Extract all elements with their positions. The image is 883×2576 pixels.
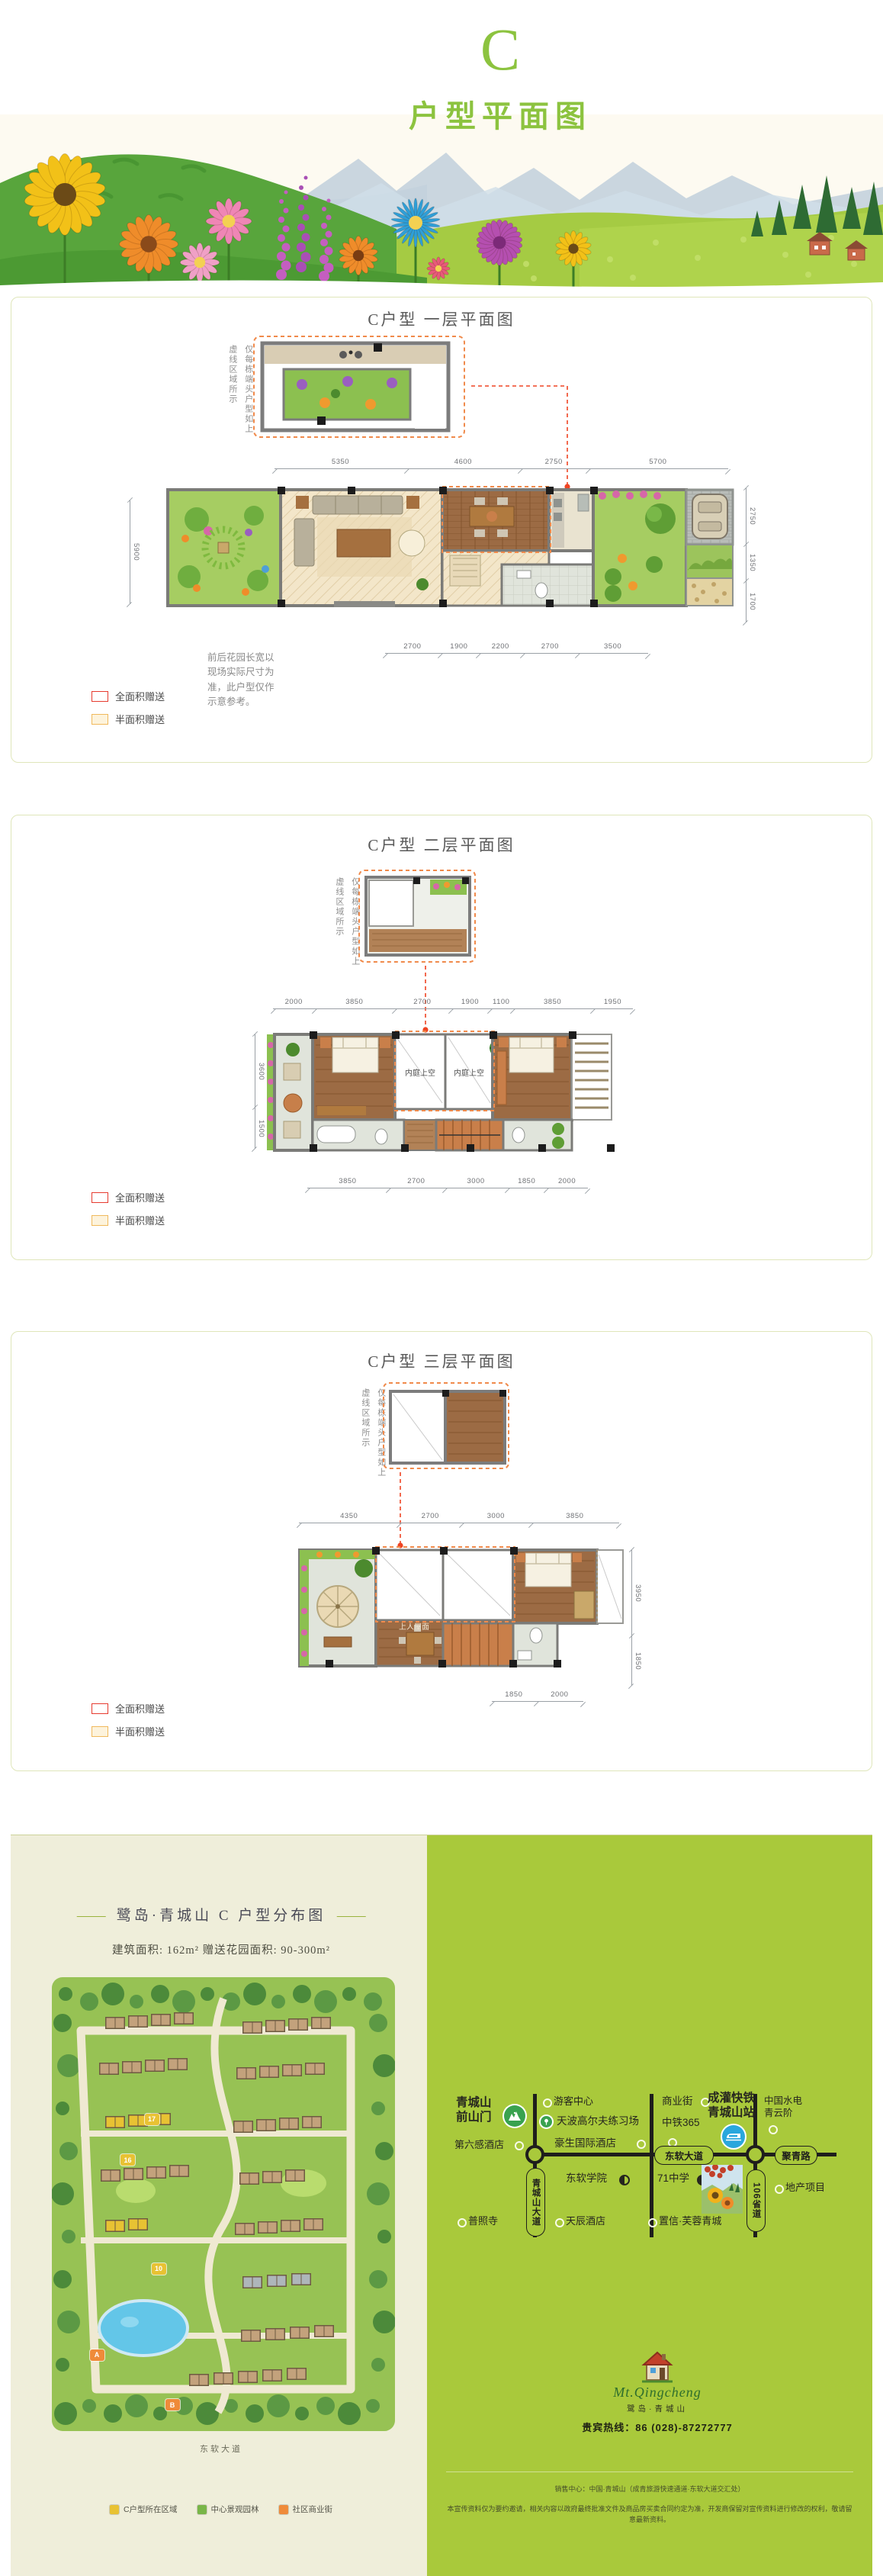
stop-dot: [775, 2185, 784, 2194]
floor3-title: C户型 三层平面图: [368, 1349, 515, 1372]
half-gift-swatch: [92, 714, 108, 725]
full-gift-swatch: [92, 691, 108, 702]
legend-half-gift: 半面积赠送: [92, 1724, 165, 1738]
label-temple: 普照寺: [468, 2215, 498, 2227]
road-junction-east: [746, 2145, 765, 2164]
banner-illustration: [0, 114, 883, 288]
full-gift-label: 全面积赠送: [115, 689, 165, 703]
dimension-segment: 2000: [546, 1177, 588, 1188]
dimension-segment: 3000: [445, 1177, 507, 1188]
mountain-gate-icon: [504, 2105, 525, 2127]
dimension-segment: 2700: [399, 1512, 461, 1523]
dimension-segment: 2200: [478, 642, 522, 654]
dimension-segment: 2700: [522, 642, 577, 654]
site-road-label: 东软大道: [200, 2443, 242, 2455]
site-legend-item: 中心景观园林: [197, 2504, 259, 2515]
floor1-leader-line: [470, 378, 573, 493]
dimension-segment: 4600: [406, 458, 520, 469]
floor2-plan-drawing: 内庭上空 内庭上空: [267, 1030, 631, 1159]
fineprint-disclaimer: 本宣传资料仅为要约邀请，相关内容以政府最终批准文件及商品房买卖合同约定为准，开发…: [446, 2504, 853, 2526]
floor2-title: C户型 二层平面图: [368, 833, 515, 856]
floor1-top-dimensions: 5350460027505700: [275, 458, 728, 469]
floor1-bottom-dimensions: 27001900220027003500: [385, 642, 648, 654]
dimension-segment: 1500: [255, 1108, 266, 1149]
full-gift-label: 全面积赠送: [115, 1701, 165, 1716]
label-visitor-center: 游客中心: [554, 2095, 593, 2108]
label-college: 东软学院: [566, 2172, 607, 2185]
road-vertical-2-up: [650, 2094, 653, 2155]
train-icon: [722, 2125, 745, 2148]
floor1-left-dimensions: 5900: [130, 500, 141, 604]
school-icon: [619, 2175, 630, 2185]
legend-full-gift: 全面积赠送: [92, 1701, 165, 1716]
dimension-segment: 1850: [492, 1690, 536, 1702]
site-marker: B: [165, 2399, 180, 2410]
site-plan-map: A B 10 16 17: [52, 1977, 395, 2431]
floor3-mini-plan: [381, 1381, 515, 1474]
label-sixsense-hotel: 第六感酒店: [454, 2139, 504, 2151]
dimension-segment: 1900: [440, 642, 478, 654]
footer-divider: [446, 2471, 853, 2472]
dimension-segment: 3850: [531, 1512, 619, 1523]
dimension-segment: 2000: [536, 1690, 583, 1702]
label-golf-range: 天波高尔夫练习场: [557, 2115, 639, 2128]
road-pill-juqing: 聚青路: [775, 2146, 817, 2165]
floor2-void-label-2: 内庭上空: [454, 1068, 484, 1078]
dimension-segment: 2000: [273, 998, 314, 1009]
floor1-garden-note: 前后花园长宽以 现场实际尺寸为 准，此户型仅作 示意参考。: [207, 651, 275, 710]
floor3-roof-label: 上人屋面: [399, 1622, 429, 1632]
dimension-segment: 1100: [490, 998, 512, 1009]
half-gift-label: 半面积赠送: [115, 712, 165, 726]
floor3-right-dimensions: 39501850: [631, 1550, 643, 1686]
dimension-segment: 3950: [631, 1550, 643, 1636]
legend-color-chip: [110, 2505, 119, 2514]
legend-full-gift: 全面积赠送: [92, 1190, 165, 1204]
label-biz-street: 商业街: [662, 2095, 693, 2108]
full-gift-swatch: [92, 1703, 108, 1714]
road-junction-west: [525, 2145, 544, 2164]
floor1-right-dimensions: 275013501700: [746, 488, 757, 622]
house-logo-icon: [639, 2349, 676, 2383]
site-legend-item: 社区商业街: [279, 2504, 333, 2515]
distribution-area-info: 建筑面积: 162m² 赠送花园面积: 90-300m²: [112, 1941, 330, 1957]
site-legend: C户型所在区域 中心景观园林 社区商业街: [110, 2504, 332, 2515]
dimension-segment: 5700: [588, 458, 728, 469]
floor1-title: C户型 一层平面图: [368, 307, 515, 330]
road-pill-qcs-avenue: 青城山大道: [526, 2168, 545, 2237]
dimension-segment: 2700: [388, 1177, 445, 1188]
legend-color-chip: [279, 2505, 288, 2514]
site-marker: 16: [120, 2154, 135, 2166]
site-marker: 17: [145, 2114, 159, 2125]
full-gift-swatch: [92, 1192, 108, 1203]
floor2-mini-plan: [357, 868, 483, 966]
golf-icon: [541, 2116, 552, 2127]
label-rail-station: 成灌快铁 青城山站: [708, 2092, 755, 2120]
legend-half-gift: 半面积赠送: [92, 712, 165, 726]
floor2-bottom-dimensions: 38502700300018502000: [307, 1177, 588, 1188]
site-marker: A: [90, 2349, 104, 2361]
label-project: 地产项目: [785, 2182, 825, 2194]
half-gift-label: 半面积赠送: [115, 1724, 165, 1738]
dimension-segment: 5350: [275, 458, 406, 469]
site-marker: 10: [152, 2263, 166, 2275]
half-gift-label: 半面积赠送: [115, 1213, 165, 1227]
fineprint-address: 销售中心：中国·青城山（成青旅游快速通道·东软大道交汇处）: [446, 2484, 853, 2494]
label-zhixin: 置信·芙蓉青城: [659, 2215, 721, 2227]
logo-chinese: 鹭岛·青城山: [627, 2403, 688, 2414]
floor3-leader-line: [396, 1472, 405, 1550]
label-zhongtie365: 中铁365: [662, 2117, 700, 2130]
dimension-segment: 1850: [631, 1636, 643, 1686]
dimension-segment: 2750: [746, 488, 757, 545]
floor1-mini-plan: [252, 334, 469, 441]
dimension-segment: 2700: [394, 998, 450, 1009]
site-markers: A B 10 16 17: [52, 1977, 395, 2431]
legend-color-chip: [197, 2505, 207, 2514]
floor2-void-label-1: 内庭上空: [405, 1068, 435, 1078]
floor3-plan-drawing: 上人屋面: [294, 1545, 625, 1674]
dimension-segment: 3600: [255, 1034, 266, 1108]
stop-dot: [543, 2098, 552, 2108]
floor2-top-dimensions: 2000385027001900110038501950: [273, 998, 633, 1009]
dimension-segment: 5900: [130, 500, 141, 604]
label-hydro: 中国水电 青云阶: [764, 2095, 802, 2119]
dimension-segment: 3500: [577, 642, 648, 654]
dimension-segment: 2700: [385, 642, 440, 654]
floor3-bottom-dimensions: 18502000: [492, 1690, 583, 1702]
site-legend-item: C户型所在区域: [110, 2504, 178, 2515]
dimension-segment: 1950: [592, 998, 633, 1009]
stop-dot: [515, 2141, 524, 2150]
dimension-segment: 3850: [314, 998, 394, 1009]
dimension-segment: 1350: [746, 545, 757, 581]
half-gift-swatch: [92, 1726, 108, 1737]
stop-dot: [648, 2218, 657, 2227]
logo-english: Mt.Qingcheng: [613, 2385, 701, 2401]
hotline: 贵宾热线：86 (028)-87272777: [582, 2420, 733, 2434]
dimension-segment: 1850: [507, 1177, 546, 1188]
label-howard-hotel: 豪生国际酒店: [554, 2137, 616, 2150]
road-pill-dongruan: 东软大道: [654, 2146, 714, 2165]
unit-type-letter: C: [480, 20, 520, 79]
dimension-segment: 3850: [307, 1177, 388, 1188]
dimension-segment: 2750: [520, 458, 588, 469]
road-pill-106: 106省道: [747, 2169, 766, 2232]
page-title: 户型平面图: [409, 92, 592, 136]
stop-dot: [769, 2125, 778, 2134]
label-front-gate: 青城山 前山门: [456, 2096, 492, 2124]
floor1-plan-drawing: [166, 485, 734, 615]
floor3-top-dimensions: 4350270030003850: [299, 1512, 619, 1523]
legend-full-gift: 全面积赠送: [92, 689, 165, 703]
dimension-segment: 1900: [451, 998, 490, 1009]
half-gift-swatch: [92, 1215, 108, 1226]
dimension-segment: 1700: [746, 581, 757, 622]
full-gift-label: 全面积赠送: [115, 1190, 165, 1204]
brochure-page: C 户型平面图: [0, 0, 883, 2576]
floor2-left-dimensions: 36001500: [255, 1034, 266, 1149]
legend-half-gift: 半面积赠送: [92, 1213, 165, 1227]
dimension-segment: 3850: [512, 998, 592, 1009]
stop-dot: [555, 2218, 564, 2227]
dimension-segment: 3000: [461, 1512, 531, 1523]
stop-dot: [458, 2218, 467, 2227]
label-tianchen-hotel: 天辰酒店: [566, 2215, 605, 2227]
distribution-title: 鹭岛·青城山 C 户型分布图: [66, 1904, 377, 1925]
project-photo-marker: [702, 2165, 743, 2214]
dimension-segment: 4350: [299, 1512, 399, 1523]
label-school-71: 71中学: [657, 2172, 689, 2185]
stop-dot: [637, 2140, 646, 2149]
